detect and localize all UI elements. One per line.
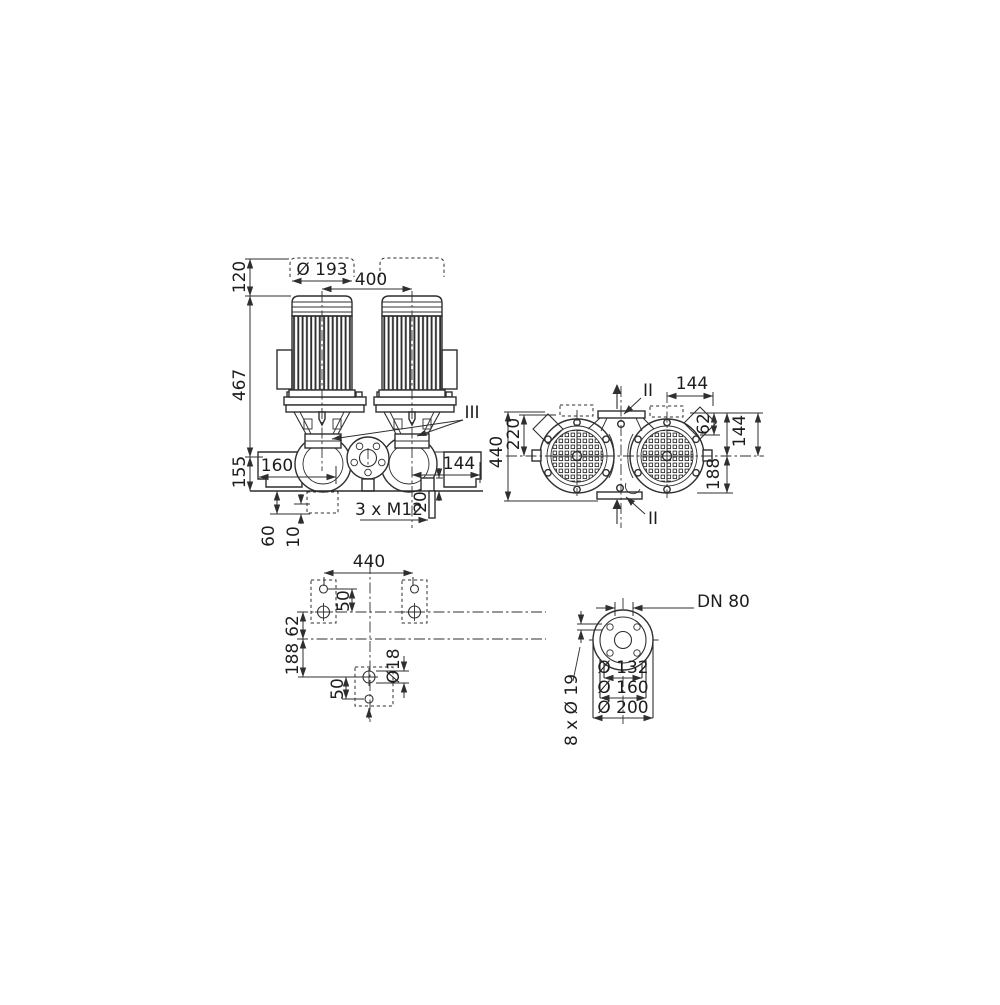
terminal-lug-right xyxy=(442,350,457,389)
dim-height-above-motor: 120 xyxy=(230,259,291,296)
foundation-plan-view: 440 50 62 188 50 Ø18 xyxy=(283,552,546,722)
section-ref: II xyxy=(648,509,658,529)
dim-label: Ø 200 xyxy=(597,698,648,718)
dim-label: DN 80 xyxy=(697,592,750,612)
dim-label: 8 x Ø 19 xyxy=(562,674,582,746)
dim-label: 120 xyxy=(230,261,250,293)
dim-label: 144 xyxy=(730,415,750,447)
dim-label: Ø 132 xyxy=(597,658,648,678)
dim-label: 400 xyxy=(355,270,387,290)
dim-label: 144 xyxy=(676,374,708,394)
terminal-lug-left xyxy=(277,350,292,389)
dim-label: 440 xyxy=(353,552,385,572)
alt-motor-outline-right xyxy=(380,258,444,277)
section-label-bottom: II xyxy=(626,497,658,529)
anchor-plate-upper-left xyxy=(311,580,336,623)
foot-lug-left xyxy=(532,450,541,461)
section-ref: II xyxy=(643,381,653,401)
suction-flange-bottom xyxy=(597,483,642,499)
dim-label: 144 xyxy=(443,454,475,474)
alt-box-left xyxy=(560,405,593,416)
dim-label: 188 xyxy=(704,458,724,490)
dim-outer-diameter: Ø 200 xyxy=(593,698,653,718)
dim-grout-thickness: 10 xyxy=(284,494,310,548)
dim-label: 3 x M12 xyxy=(355,500,423,520)
dim-upper-hole-pitch: 50 xyxy=(328,589,357,612)
dim-label: 50 xyxy=(328,678,348,700)
drain-boss xyxy=(421,478,434,491)
detail-ref-label: III xyxy=(464,403,479,423)
dim-offset-62: 62 xyxy=(283,612,303,639)
drain-tab xyxy=(362,479,374,491)
pump-dimensional-drawing: Ø 193 400 120 467 155 160 1 xyxy=(0,0,1000,1000)
dim-label: 62 xyxy=(283,615,303,637)
dim-label: 50 xyxy=(334,590,354,612)
dim-offset-188: 188 xyxy=(283,639,362,677)
dim-drain-plug-thread: 3 x M12 xyxy=(355,500,428,520)
dim-raised-face: Ø 160 xyxy=(597,678,648,698)
alt-box-right xyxy=(650,406,683,417)
motor-left xyxy=(277,296,355,397)
dim-label: Ø 160 xyxy=(597,678,648,698)
dim-label: 62 xyxy=(694,413,714,435)
motor-right xyxy=(379,296,457,397)
dim-label: Ø 193 xyxy=(296,260,347,280)
foundation-recess xyxy=(307,492,338,513)
dim-label: 160 xyxy=(261,456,293,476)
flow-arrow-top xyxy=(613,384,622,409)
plan-view: II II 440 220 144 xyxy=(487,374,764,529)
section-label-top: II xyxy=(624,381,653,414)
dim-label: 188 xyxy=(283,643,303,675)
front-elevation-view: Ø 193 400 120 467 155 160 1 xyxy=(230,258,483,548)
flow-arrow-bottom xyxy=(613,499,622,524)
dim-label: 220 xyxy=(504,418,524,450)
dim-bolt-spacing: 440 xyxy=(324,552,413,586)
dim-label: Ø18 xyxy=(384,648,404,683)
drawing-canvas: Ø 193 400 120 467 155 160 1 xyxy=(0,0,1000,1000)
dim-label: 467 xyxy=(230,369,250,401)
dim-label: 60 xyxy=(259,525,279,547)
dim-bolt-circle: Ø 132 xyxy=(597,658,648,678)
dim-lower-hole-pitch: 50 xyxy=(328,677,364,700)
dim-motor-diameter: Ø 193 xyxy=(292,260,352,281)
dim-terminal-box-offset: 144 xyxy=(667,374,713,406)
dim-edge-144: 144 xyxy=(727,413,758,456)
anchor-plate-upper-right xyxy=(402,580,427,623)
flange-detail-view: DN 80 8 x Ø 19 Ø 132 Ø 160 Ø 200 xyxy=(562,592,750,746)
dim-height-total: 467 xyxy=(230,296,250,457)
dim-label: 155 xyxy=(230,456,250,488)
dim-label: 10 xyxy=(284,526,304,548)
